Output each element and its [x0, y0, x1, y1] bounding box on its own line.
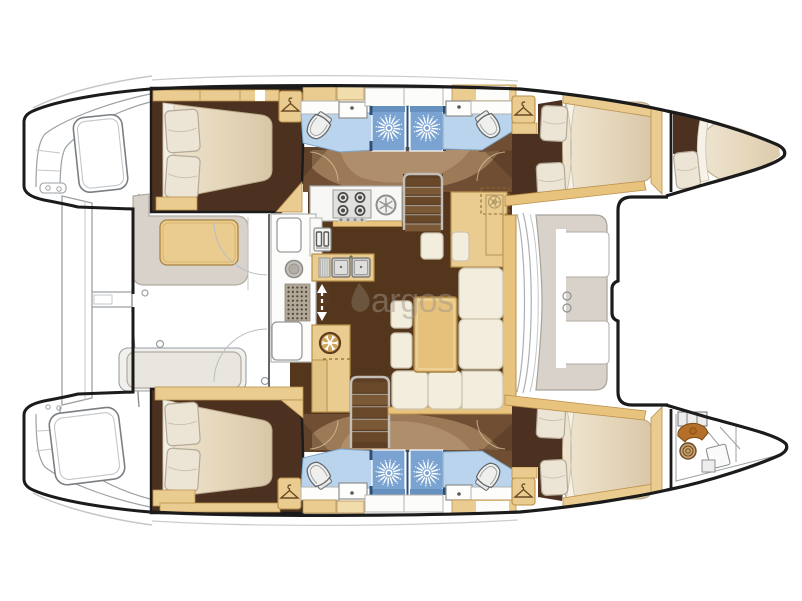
- svg-text:argos: argos: [371, 282, 454, 320]
